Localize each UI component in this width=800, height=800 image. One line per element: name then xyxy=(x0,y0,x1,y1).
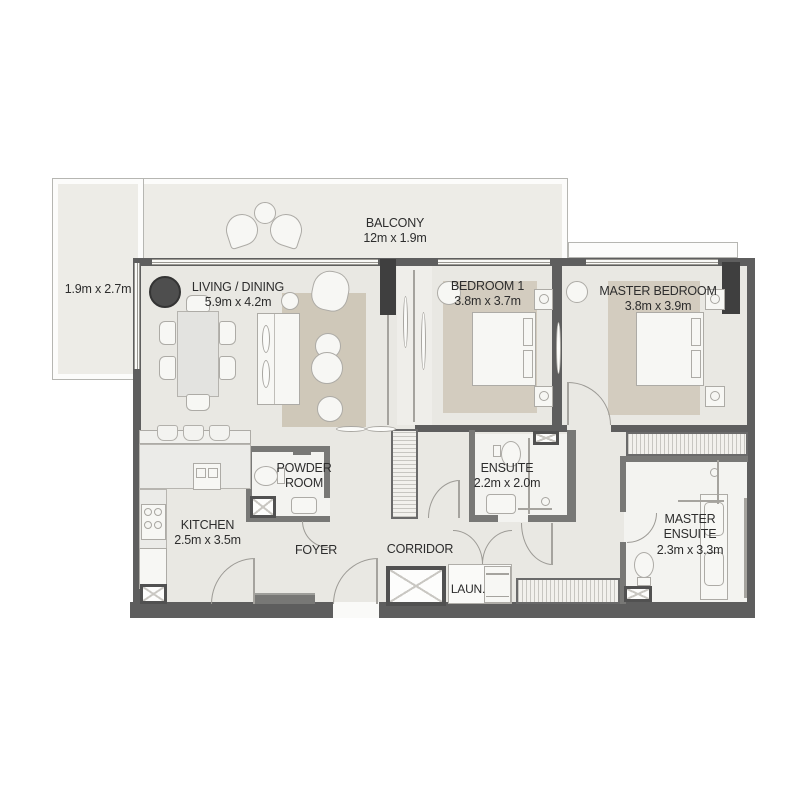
side-balcony-dims: 1.9m x 2.7m xyxy=(50,282,146,297)
powder-room-label: POWDER ROOM xyxy=(272,461,336,492)
ensuite-towel-bar xyxy=(518,508,552,510)
master-door-leaf xyxy=(567,382,569,425)
dining-chair-icon xyxy=(159,356,176,380)
powder-shelf xyxy=(293,450,311,455)
pouf-icon xyxy=(311,352,343,384)
bedroom1-dims: 3.8m x 3.7m xyxy=(420,294,555,309)
kitchen-sink-bowl xyxy=(196,468,206,478)
washer-detail xyxy=(486,573,509,575)
balcony-label: BALCONY 12m x 1.9m xyxy=(325,216,465,247)
ensuite-door-leaf xyxy=(551,523,553,565)
window-living-side xyxy=(134,263,140,369)
master-ensuite-duct-icon xyxy=(624,586,652,602)
bedroom1-wardrobe xyxy=(391,429,418,519)
sofa-pillow-icon xyxy=(262,325,270,353)
pouf-icon xyxy=(317,396,343,422)
corridor-label: CORRIDOR xyxy=(370,542,470,557)
foyer-label: FOYER xyxy=(270,543,362,558)
master-ensuite-dims: 2.3m x 3.3m xyxy=(648,543,732,558)
living-dining-dims: 5.9m x 4.2m xyxy=(164,295,312,310)
burner-icon xyxy=(154,508,162,516)
lamp-icon xyxy=(710,391,720,401)
entry-opening xyxy=(333,602,379,618)
ensuite-wall-right xyxy=(567,430,576,522)
ensuite-duct-icon xyxy=(533,431,559,445)
balcony-dims: 12m x 1.9m xyxy=(325,231,465,246)
balcony-ledge-right xyxy=(568,242,738,258)
window-master-bedroom xyxy=(586,259,718,265)
kitchen-door-leaf xyxy=(253,558,255,604)
corridor-wardrobe xyxy=(516,578,620,604)
kitchen-name: KITCHEN xyxy=(150,518,265,533)
window-bedroom1 xyxy=(438,259,550,265)
bedroom1-label: BEDROOM 1 3.8m x 3.7m xyxy=(420,279,555,310)
ensuite-dims: 2.2m x 2.0m xyxy=(454,476,560,491)
slider-track xyxy=(387,315,389,425)
balcony-slider-frame xyxy=(380,259,396,315)
dining-table xyxy=(177,311,219,397)
pocket-door-panel xyxy=(556,322,561,374)
ensuite-shower-drain-icon xyxy=(541,497,550,506)
laundry-name: LAUN. xyxy=(443,582,493,597)
pillow-icon xyxy=(691,350,701,378)
master-bedroom-label: MASTER BEDROOM 3.8m x 3.9m xyxy=(578,284,738,315)
powder-wall-top xyxy=(246,446,330,452)
bar-stool-icon xyxy=(183,425,204,441)
ensuite-toilet-tank-icon xyxy=(493,445,501,457)
kitchen-fridge-icon xyxy=(139,548,167,588)
master-ensuite-wall-top xyxy=(620,456,748,462)
master-wardrobe xyxy=(626,432,748,456)
master-ensuite-wall-left xyxy=(620,456,626,512)
master-toilet-tank-icon xyxy=(637,577,651,586)
powder-sink-icon xyxy=(291,497,317,514)
pillow-icon xyxy=(691,318,701,346)
side-balcony-label: 1.9m x 2.7m xyxy=(50,282,146,297)
ensuite-label: ENSUITE 2.2m x 2.0m xyxy=(454,461,560,492)
kitchen-dims: 2.5m x 3.5m xyxy=(150,533,265,548)
partition-panel xyxy=(366,426,396,432)
balcony-name: BALCONY xyxy=(325,216,465,231)
lamp-icon xyxy=(539,391,549,401)
slider-panel xyxy=(421,312,426,370)
ensuite-sink-icon xyxy=(486,494,516,514)
master-ensuite-label: MASTER ENSUITE 2.3m x 3.3m xyxy=(648,512,732,558)
ensuite-name: ENSUITE xyxy=(454,461,560,476)
kitchen-label: KITCHEN 2.5m x 3.5m xyxy=(150,518,265,549)
laundry-label: LAUN. xyxy=(443,582,493,597)
bar-stool-icon xyxy=(157,425,178,441)
slider-track xyxy=(413,270,415,422)
ensuite-door-opening xyxy=(498,515,528,522)
slider-panel xyxy=(403,296,408,348)
sofa-pillow-icon xyxy=(262,360,270,388)
dining-chair-icon xyxy=(219,356,236,380)
balcony-floor-side xyxy=(58,184,138,374)
pillow-icon xyxy=(523,318,533,346)
master-bedroom-dims: 3.8m x 3.9m xyxy=(578,299,738,314)
wall-bottom-niche xyxy=(253,593,315,604)
dining-chair-icon xyxy=(159,321,176,345)
wall-right xyxy=(747,258,755,606)
window-living xyxy=(152,259,378,265)
service-shaft-icon xyxy=(386,566,446,606)
pillow-icon xyxy=(523,350,533,378)
master-bedroom-name: MASTER BEDROOM xyxy=(578,284,738,299)
partition-panel xyxy=(336,426,366,432)
dining-chair-icon xyxy=(186,394,210,411)
bedroom1-name: BEDROOM 1 xyxy=(420,279,555,294)
living-dining-label: LIVING / DINING 5.9m x 4.2m xyxy=(164,280,312,311)
kitchen-sink-bowl xyxy=(208,468,218,478)
dining-chair-icon xyxy=(219,321,236,345)
foyer-name: FOYER xyxy=(270,543,362,558)
master-ensuite-name: MASTER ENSUITE xyxy=(648,512,732,543)
powder-room-name: POWDER ROOM xyxy=(272,461,336,492)
bar-stool-icon xyxy=(209,425,230,441)
entry-door-leaf xyxy=(376,558,378,604)
burner-icon xyxy=(144,508,152,516)
sofa-cushion-line xyxy=(274,314,275,404)
floor-plan: BALCONY 12m x 1.9m 1.9m x 2.7m LIVING / … xyxy=(0,0,800,800)
master-mirror xyxy=(744,498,747,598)
master-shower-edge xyxy=(678,500,724,502)
living-dining-name: LIVING / DINING xyxy=(164,280,312,295)
master-shower-glass xyxy=(717,460,719,504)
powder-duct-icon xyxy=(250,496,276,518)
kitchen-duct-icon xyxy=(140,584,167,604)
corridor-name: CORRIDOR xyxy=(370,542,470,557)
